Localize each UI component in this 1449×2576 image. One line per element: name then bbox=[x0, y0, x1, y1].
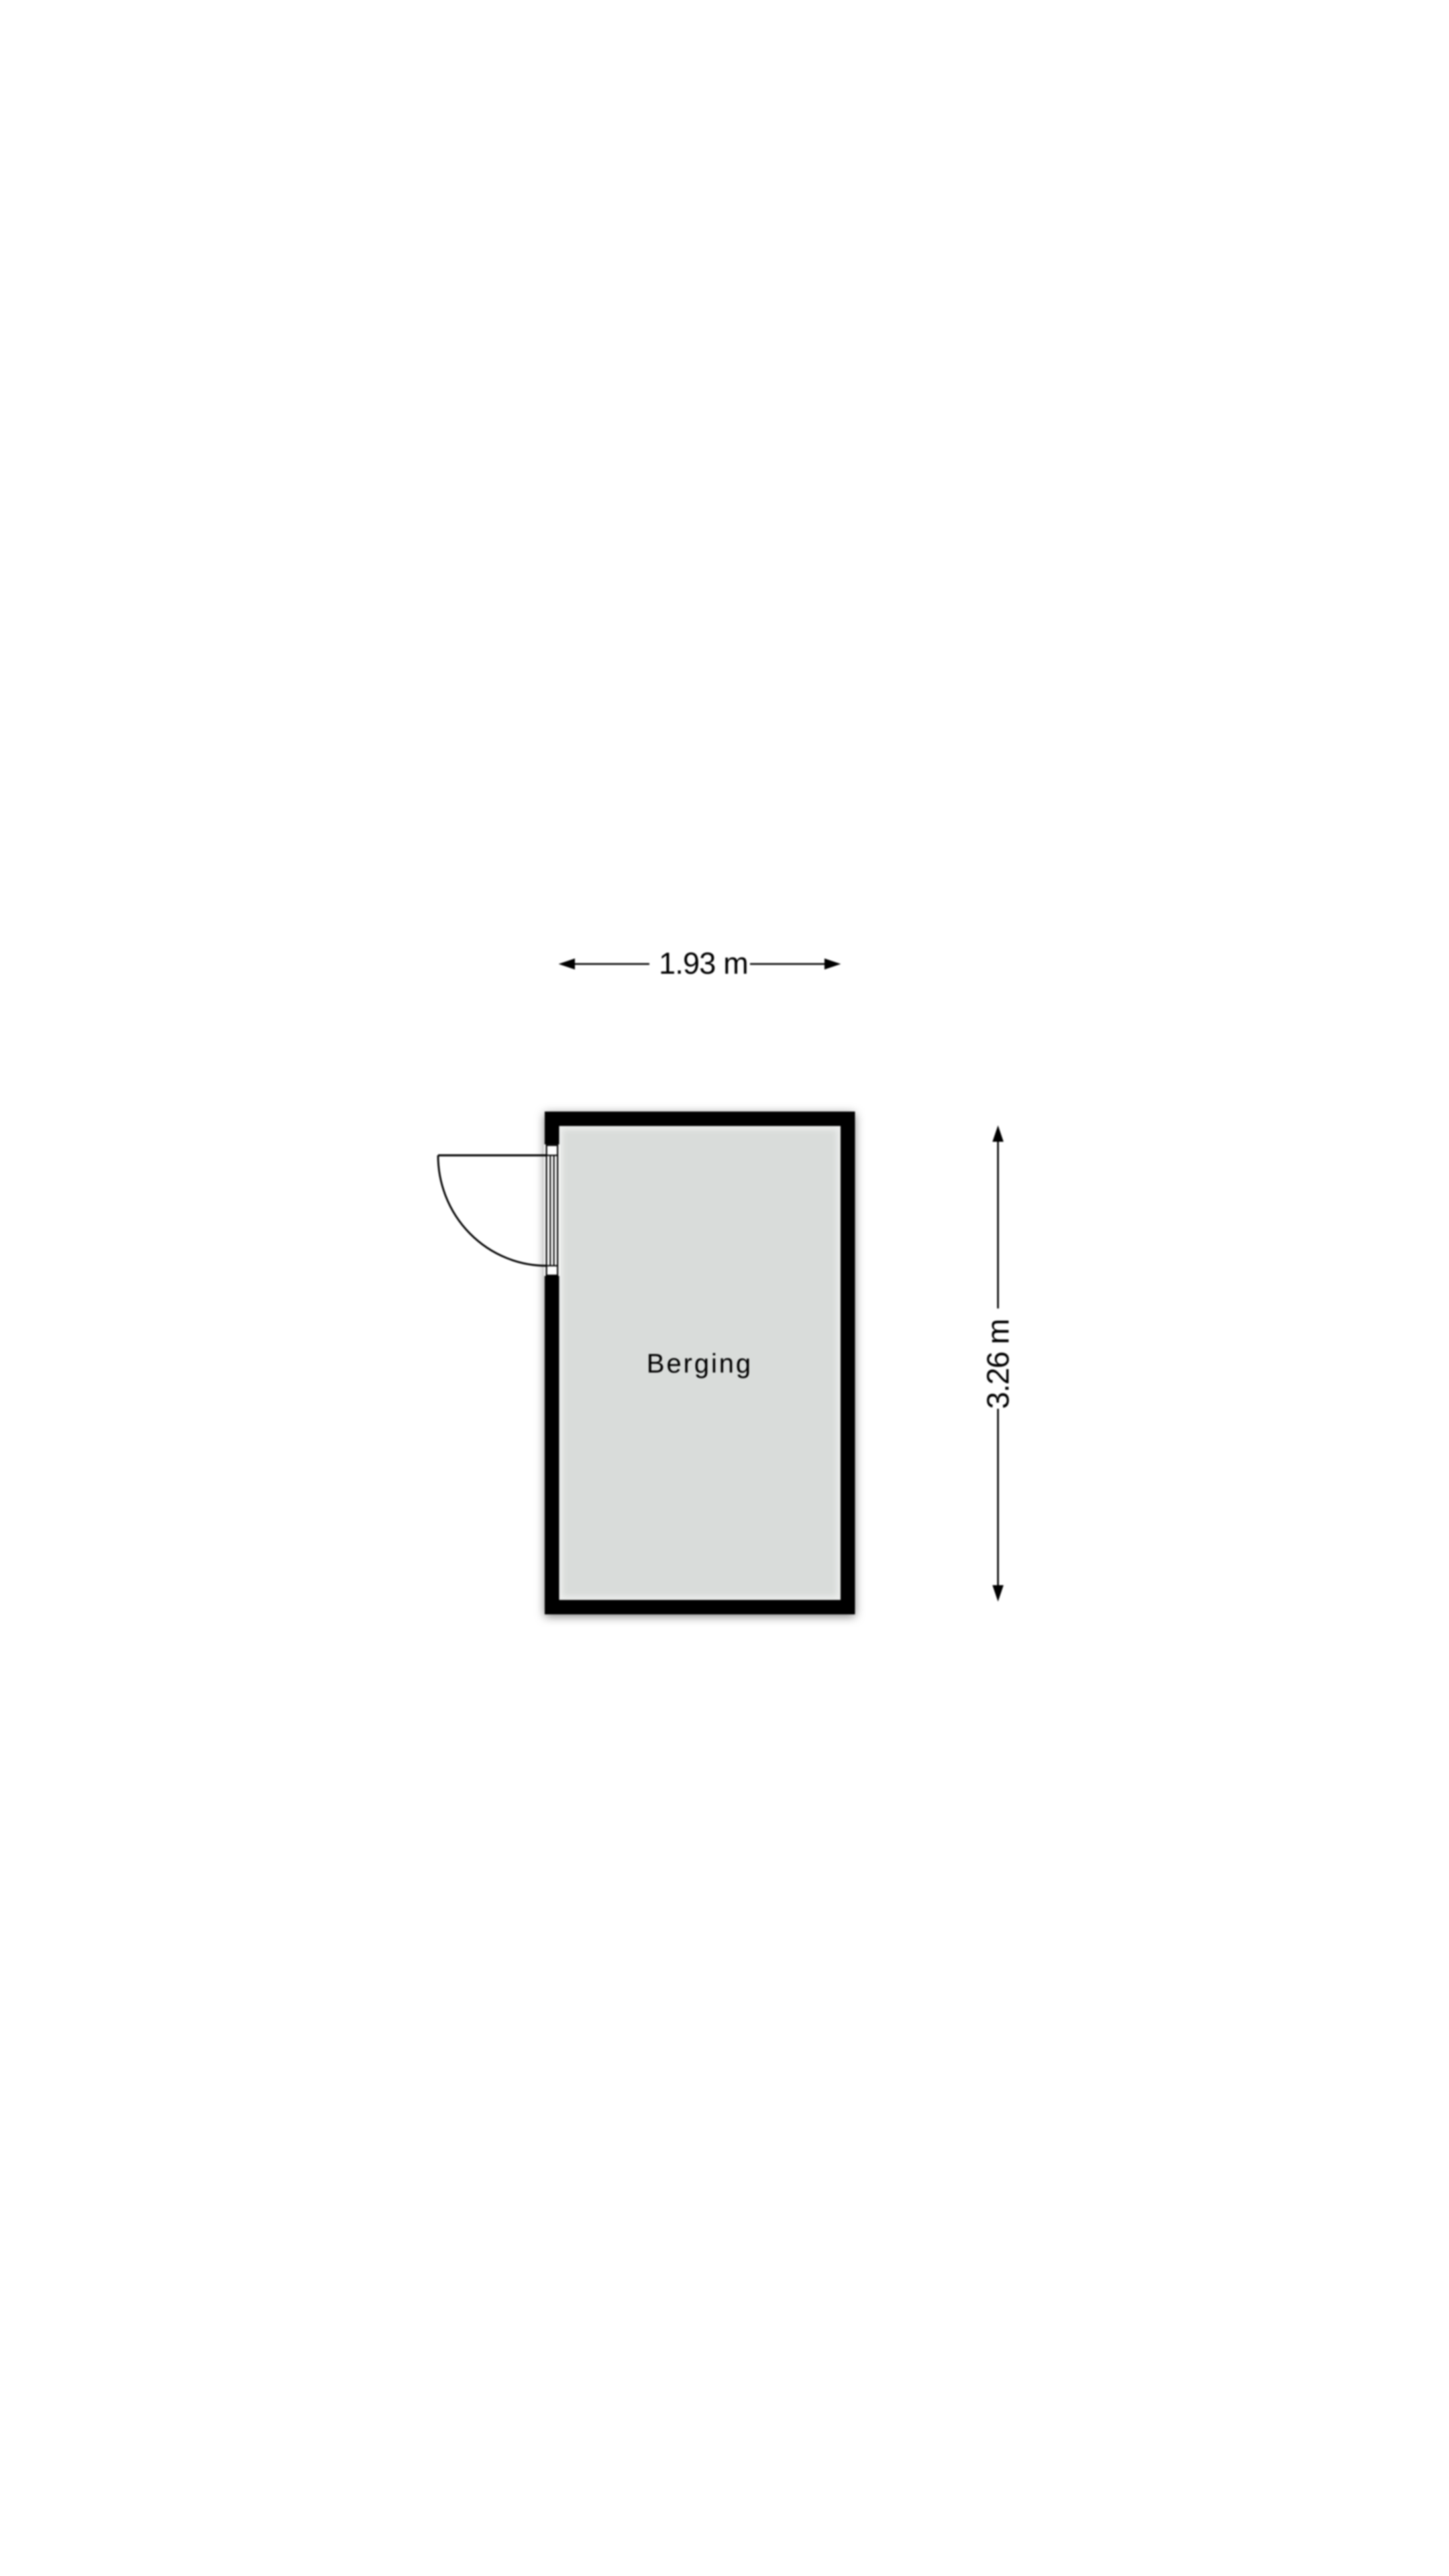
svg-text:3.26 m: 3.26 m bbox=[981, 1320, 1016, 1409]
svg-text:Berging: Berging bbox=[647, 1349, 753, 1379]
svg-text:1.93 m: 1.93 m bbox=[659, 947, 748, 981]
